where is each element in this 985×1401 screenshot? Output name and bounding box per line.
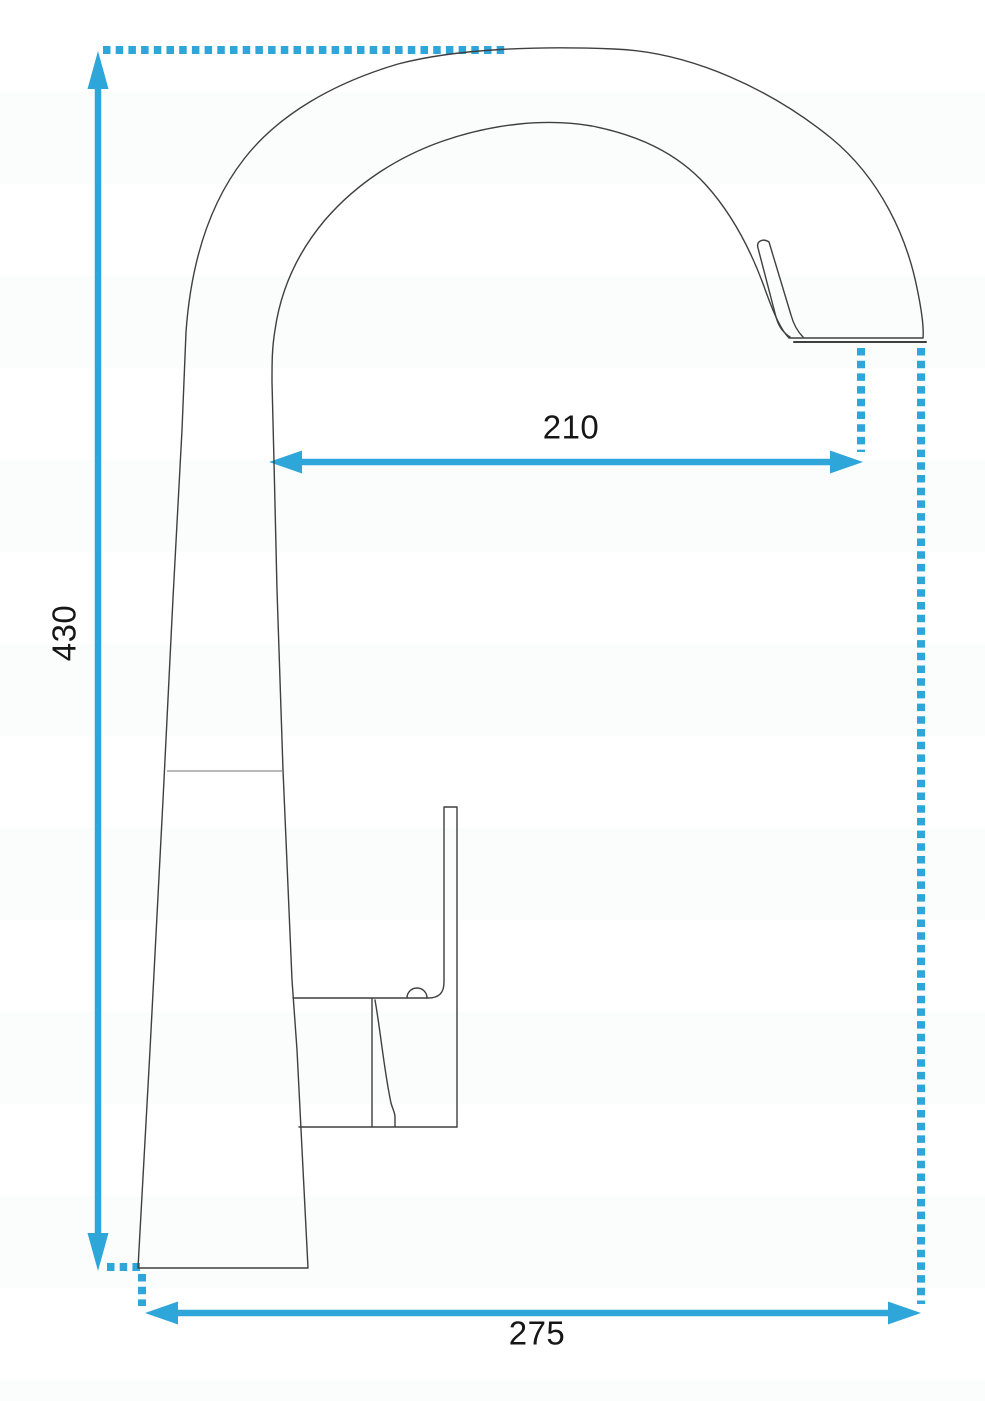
dimension-label-height: 430 — [48, 605, 81, 662]
drawing-canvas: 430 210 275 — [0, 0, 985, 1401]
dimension-arrowheads — [88, 51, 922, 1325]
faucet-outline — [138, 48, 926, 1268]
dimension-label-base-width: 275 — [509, 1317, 566, 1350]
faucet-technical-drawing — [0, 0, 985, 1401]
dimension-label-spout-reach: 210 — [543, 411, 600, 444]
dimension-lines — [98, 86, 890, 1313]
handle-pivot-dome — [407, 988, 427, 998]
arrowhead-right-210-icon — [830, 451, 863, 474]
arrowhead-down-icon — [88, 1233, 109, 1271]
arrowhead-right-275-icon — [888, 1302, 921, 1325]
dimension-extension-lines — [103, 50, 921, 1306]
arrowhead-left-275-icon — [145, 1302, 178, 1325]
arrowhead-up-icon — [88, 51, 109, 89]
handle-lever — [293, 807, 457, 1127]
faucet-body-outline — [138, 48, 923, 1268]
valve-body-lines — [299, 999, 457, 1127]
